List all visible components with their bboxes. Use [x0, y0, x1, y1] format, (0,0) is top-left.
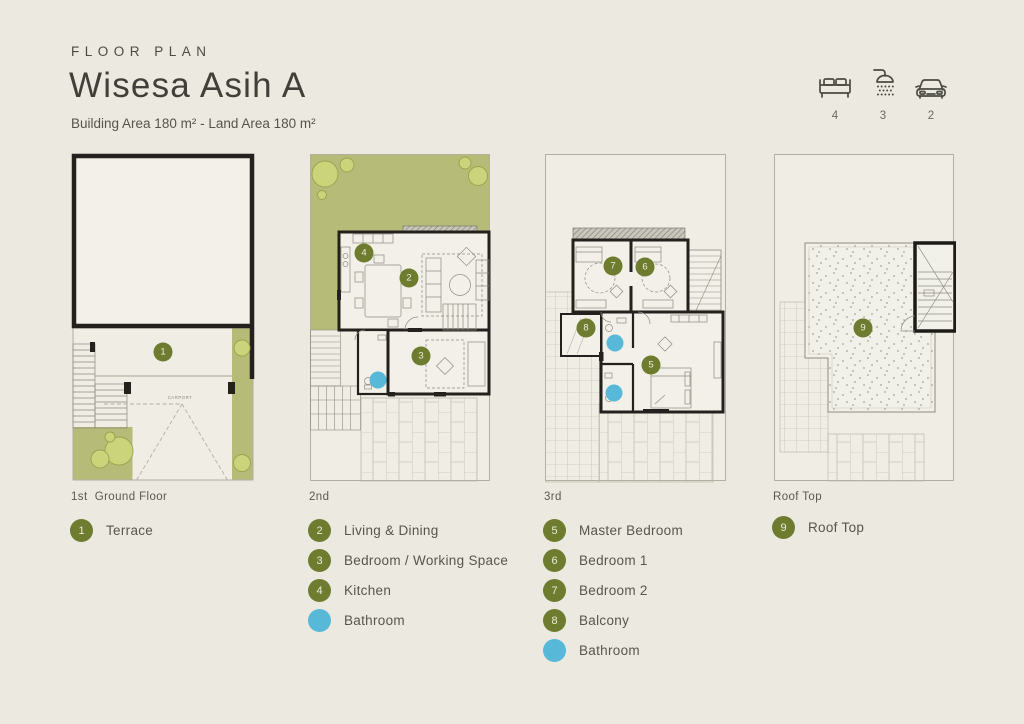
floor-plan-page: FLOOR PLAN Wisesa Asih A Building Area 1… [0, 0, 1024, 724]
legend-item-balcony: 8 Balcony [543, 609, 683, 632]
carport-label: CARPORT [168, 395, 193, 400]
marker-master-bedroom: 5 [642, 356, 661, 375]
amenity-bathrooms: 3 [862, 64, 904, 122]
car-icon [914, 76, 948, 100]
amenities-row: 4 3 2 [814, 64, 952, 122]
legend-circle: 3 [308, 549, 331, 572]
stair-tower [915, 243, 955, 331]
area-subtitle: Building Area 180 m² - Land Area 180 m² [71, 116, 316, 131]
marker-balcony: 8 [577, 319, 596, 338]
second-floor-plan-drawing [308, 152, 492, 483]
paving [361, 398, 477, 481]
floor-label-roof: Roof Top [773, 491, 822, 503]
legend-roof: 9 Roof Top [772, 516, 864, 539]
shower-icon [869, 68, 897, 100]
paving-bottom [599, 404, 713, 482]
marker-bathroom [370, 372, 387, 389]
legend-item-bedroom-1: 6 Bedroom 1 [543, 549, 683, 572]
legend-circle-bathroom [543, 639, 566, 662]
amenity-bedrooms: 4 [814, 64, 856, 122]
ground-floor-plan-drawing: CARPORT [70, 152, 258, 483]
legend-circle: 6 [543, 549, 566, 572]
legend-item-bedroom-working-space: 3 Bedroom / Working Space [308, 549, 508, 572]
main-room-walls [74, 156, 252, 326]
marker-terrace: 1 [154, 343, 173, 362]
legend-circle: 8 [543, 609, 566, 632]
legend-circle-bathroom [308, 609, 331, 632]
roof-top-plan: 9 Roof Top [772, 152, 956, 483]
second-floor-plan: 4 2 3 2nd [308, 152, 492, 483]
legend-circle: 9 [772, 516, 795, 539]
marker-living-dining: 2 [400, 269, 419, 288]
paving-bottom [828, 434, 924, 481]
bedroom-walls [388, 330, 489, 394]
marker-kitchen: 4 [355, 244, 374, 263]
bathrooms-count: 3 [880, 110, 886, 122]
bedrooms-count: 4 [832, 110, 838, 122]
marker-bedroom-2: 7 [604, 257, 623, 276]
legend-circle: 4 [308, 579, 331, 602]
legend-item-terrace: 1 Terrace [70, 519, 153, 542]
legend-circle: 2 [308, 519, 331, 542]
legend-item-living-dining: 2 Living & Dining [308, 519, 508, 542]
legend-item-bathroom: Bathroom [543, 639, 683, 662]
marker-bedroom-working-space: 3 [412, 347, 431, 366]
marker-roof-top: 9 [854, 319, 873, 338]
marker-bathroom [606, 385, 623, 402]
roof-top-plan-drawing [772, 152, 956, 483]
deck [573, 228, 685, 240]
marker-bathroom [607, 335, 624, 352]
floor-label-second: 2nd [309, 491, 329, 503]
legend-item-kitchen: 4 Kitchen [308, 579, 508, 602]
amenity-carport: 2 [910, 64, 952, 122]
legend-item-roof-top: 9 Roof Top [772, 516, 864, 539]
legend-ground: 1 Terrace [70, 519, 153, 542]
floor-label-ground: 1st Ground Floor [71, 491, 167, 503]
third-floor-plan: 7 6 8 5 3rd [543, 152, 728, 483]
carport-count: 2 [928, 110, 934, 122]
third-floor-plan-drawing [543, 152, 728, 483]
legend-second: 2 Living & Dining 3 Bedroom / Working Sp… [308, 519, 508, 632]
legend-item-master-bedroom: 5 Master Bedroom [543, 519, 683, 542]
legend-circle: 5 [543, 519, 566, 542]
floor-label-third: 3rd [544, 491, 562, 503]
bed-icon [817, 74, 853, 100]
legend-item-bedroom-2: 7 Bedroom 2 [543, 579, 683, 602]
legend-item-bathroom: Bathroom [308, 609, 508, 632]
section-eyebrow: FLOOR PLAN [71, 44, 212, 59]
legend-third: 5 Master Bedroom 6 Bedroom 1 7 Bedroom 2… [543, 519, 683, 662]
marker-bedroom-1: 6 [636, 258, 655, 277]
ground-floor-plan: CARPORT 1 1st Ground Floor [70, 152, 258, 483]
legend-circle: 1 [70, 519, 93, 542]
legend-circle: 7 [543, 579, 566, 602]
page-title: Wisesa Asih A [69, 66, 306, 106]
